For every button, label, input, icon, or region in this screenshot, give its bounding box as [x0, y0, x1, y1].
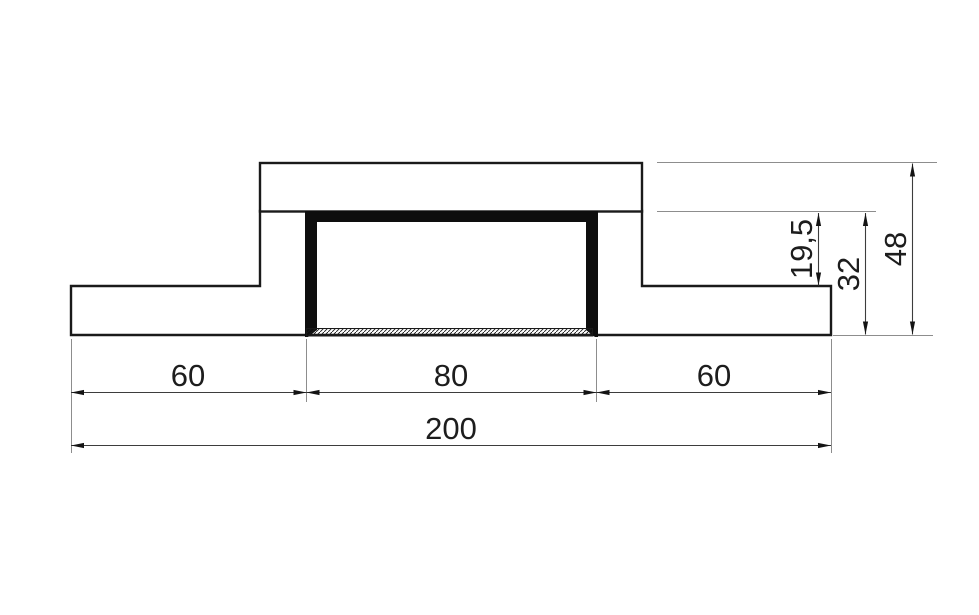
- channel-top-bar: [305, 211, 598, 222]
- dim-label-60-left: 60: [171, 358, 205, 393]
- dimension-total-width: 200: [71, 411, 831, 448]
- dim-label-19-5: 19,5: [784, 219, 819, 279]
- profile-drawing-svg: 60 80 60 200 19,5: [0, 0, 979, 615]
- dim-label-80-center: 80: [434, 358, 468, 393]
- profile-body-outline: [71, 211, 831, 335]
- profile-cross-section: [71, 163, 831, 337]
- diffuser-hatch-strip: [307, 329, 593, 337]
- channel-right-bar: [586, 211, 598, 330]
- dim-label-200: 200: [425, 411, 477, 446]
- drawing-canvas: 60 80 60 200 19,5: [0, 0, 979, 615]
- dimension-height-step: 32: [831, 213, 868, 335]
- dimension-height-total: 48: [878, 164, 915, 335]
- dim-label-32: 32: [831, 257, 866, 291]
- dimension-row-segments: 60 80 60: [71, 358, 831, 395]
- dim-label-48: 48: [878, 232, 913, 266]
- channel-left-bar: [305, 211, 317, 330]
- dimension-height-inner: 19,5: [784, 213, 821, 286]
- dim-label-60-right: 60: [697, 358, 731, 393]
- top-cap: [260, 163, 642, 212]
